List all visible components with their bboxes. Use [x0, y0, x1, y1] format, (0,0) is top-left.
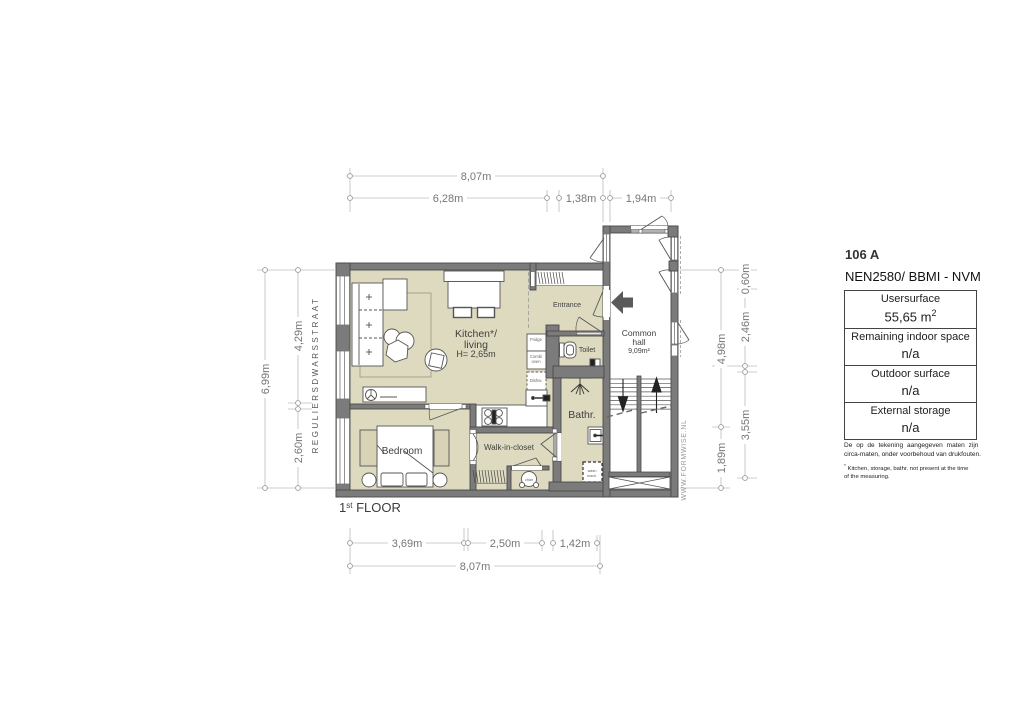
svg-text:WWW.FORMWISE.NL: WWW.FORMWISE.NL [681, 419, 688, 500]
svg-text:1st FLOOR: 1st FLOOR [339, 500, 401, 515]
svg-text:2,46m: 2,46m [740, 312, 752, 343]
svg-text:REGULIERSDWARSSTRAAT: REGULIERSDWARSSTRAAT [311, 297, 320, 454]
svg-text:2,60m: 2,60m [293, 433, 305, 464]
svg-text:4,29m: 4,29m [293, 321, 305, 352]
svg-text:1,94m: 1,94m [626, 193, 657, 205]
svg-text:hall: hall [632, 337, 645, 347]
svg-text:2,50m: 2,50m [490, 538, 521, 550]
svg-text:Dishw.: Dishw. [530, 378, 542, 383]
svg-text:1,89m: 1,89m [716, 443, 728, 474]
svg-text:H= 2,65m: H= 2,65m [456, 349, 495, 359]
svg-text:Bedroom: Bedroom [382, 446, 423, 457]
svg-text:9,09m²: 9,09m² [628, 348, 650, 355]
svg-text:6,28m: 6,28m [433, 193, 464, 205]
svg-text:4,98m: 4,98m [716, 334, 728, 365]
svg-text:Toilet: Toilet [579, 347, 595, 354]
svg-text:8,07m: 8,07m [461, 171, 492, 183]
svg-text:3,55m: 3,55m [740, 410, 752, 441]
svg-text:Bathr.: Bathr. [568, 409, 595, 421]
svg-text:1,38m: 1,38m [566, 193, 597, 205]
svg-text:Entrance: Entrance [553, 302, 581, 309]
svg-text:chair: chair [525, 478, 534, 482]
svg-text:3,69m: 3,69m [392, 538, 423, 550]
svg-text:0,60m: 0,60m [740, 264, 752, 295]
svg-text:1,42m: 1,42m [560, 538, 591, 550]
svg-text:wash: wash [588, 469, 597, 473]
svg-text:Fridge: Fridge [530, 337, 543, 342]
svg-text:mach.: mach. [587, 474, 597, 478]
svg-text:6,99m: 6,99m [260, 364, 272, 395]
svg-text:Walk-in-closet: Walk-in-closet [484, 443, 535, 452]
svg-text:8,07m: 8,07m [460, 561, 491, 573]
svg-text:oven: oven [531, 359, 541, 364]
